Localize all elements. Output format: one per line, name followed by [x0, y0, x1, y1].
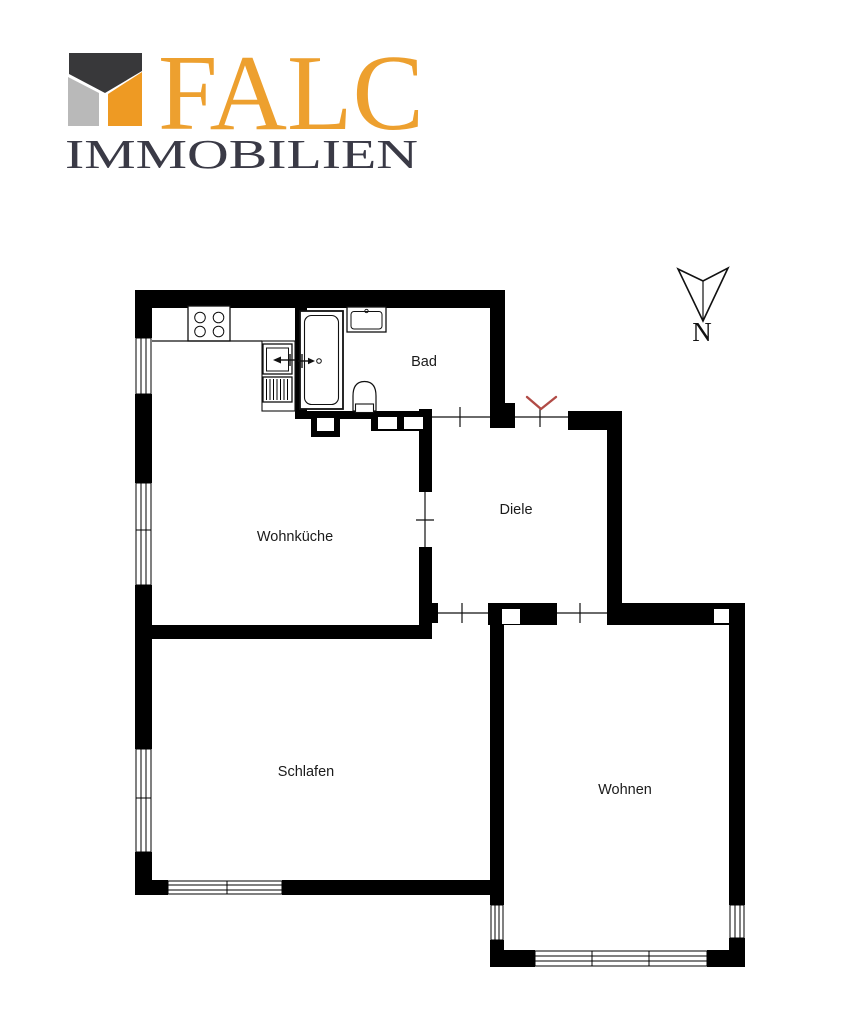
north-label: N — [692, 317, 712, 347]
hall-bedroom-door — [438, 603, 488, 623]
toilet-icon — [353, 382, 376, 413]
wall-segment — [729, 938, 745, 967]
windows — [136, 338, 744, 966]
kitchen-sink-icon — [263, 344, 295, 374]
bathtub-icon — [298, 311, 343, 409]
wall-segment — [490, 625, 504, 905]
north-arrow: N — [678, 268, 728, 347]
wall-segment — [607, 411, 622, 605]
brand-subtitle: IMMOBILIEN — [65, 131, 418, 177]
wall-segment — [135, 290, 505, 308]
floorplan-page: FALC IMMOBILIEN N — [0, 0, 865, 1017]
wall-segment — [135, 290, 152, 338]
wall-niche — [502, 609, 520, 624]
wall-segment — [282, 880, 503, 895]
floorplan-canvas: FALC IMMOBILIEN N — [0, 0, 865, 1017]
wall-segment — [135, 880, 168, 895]
wall-niche — [714, 609, 729, 623]
wall-niche — [404, 417, 423, 429]
wall-segment — [135, 625, 432, 639]
wall-segment — [729, 603, 745, 905]
wall-segment — [135, 394, 152, 483]
window-living-bottom — [535, 951, 707, 966]
wall-niches — [317, 417, 729, 624]
wall-niche — [317, 418, 334, 431]
kitchen-hall-door — [416, 492, 434, 547]
fixtures — [152, 306, 386, 413]
wall-segment — [490, 290, 505, 411]
washbasin-icon — [347, 307, 386, 332]
wall-segment — [428, 603, 438, 623]
window-living-left — [491, 905, 503, 940]
room-label-schlafen: Schlafen — [278, 764, 334, 780]
wall-segment — [135, 585, 152, 749]
drainer-icon — [263, 377, 292, 402]
window-kitchen — [136, 338, 151, 394]
room-label-diele: Diele — [499, 502, 532, 518]
room-label-wohnkueche: Wohnküche — [257, 529, 333, 545]
room-label-bad: Bad — [411, 354, 437, 370]
window-bedroom-bottom — [168, 881, 282, 894]
bathroom-door — [432, 407, 490, 427]
window-kitchen-double — [136, 483, 151, 585]
wall-segment — [490, 950, 535, 967]
window-living-right — [730, 905, 744, 938]
walls — [135, 290, 745, 967]
wall-segment — [490, 403, 515, 428]
brand-logo: FALC IMMOBILIEN — [65, 34, 424, 177]
stove-icon — [188, 306, 230, 341]
window-bedroom-left — [136, 749, 151, 852]
room-label-wohnen: Wohnen — [598, 782, 652, 798]
entrance-marker-icon — [527, 397, 556, 409]
wall-niche — [378, 417, 397, 429]
wall-segment — [488, 603, 557, 625]
hall-living-door — [557, 603, 607, 623]
